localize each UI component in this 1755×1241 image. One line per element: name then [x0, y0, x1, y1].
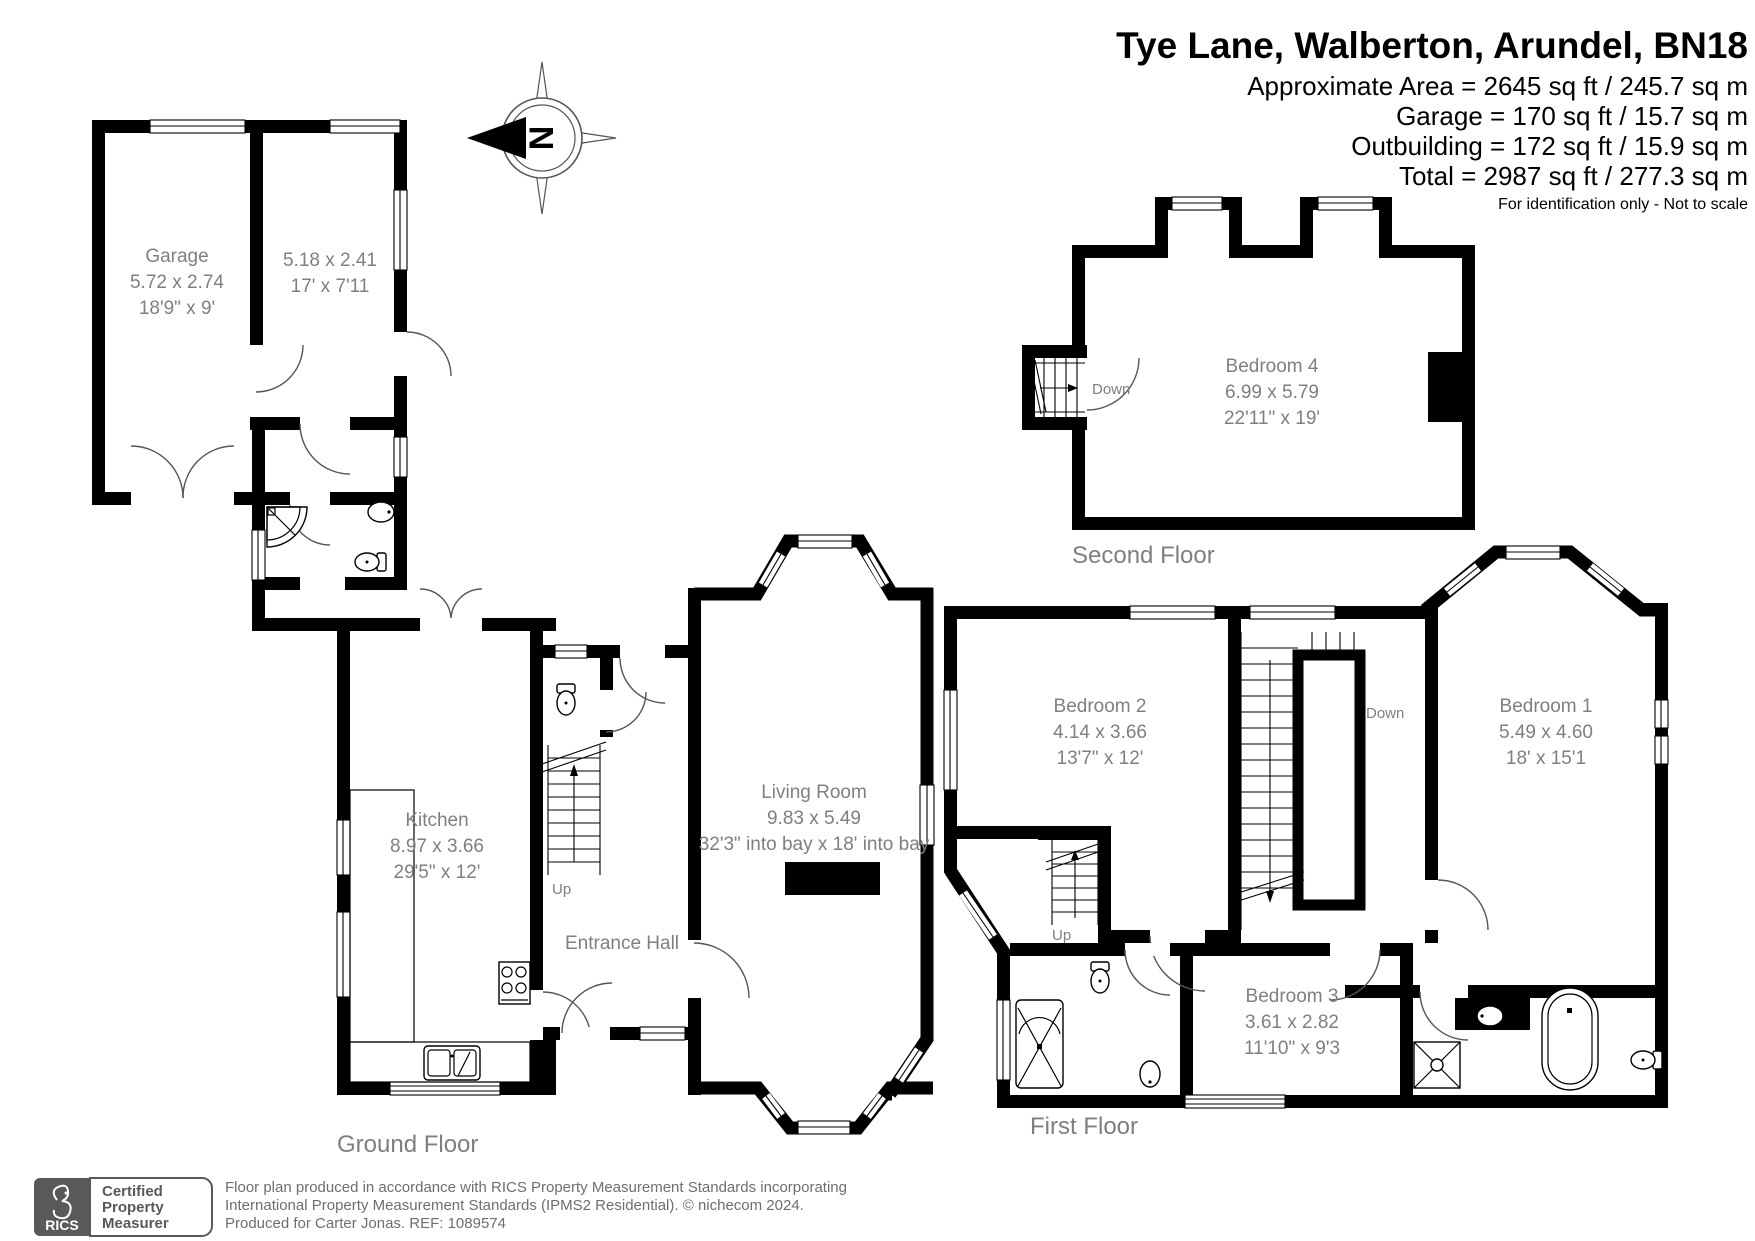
- garage-name: Garage: [145, 246, 208, 267]
- page-title: Tye Lane, Walberton, Arundel, BN18: [1116, 25, 1748, 66]
- outbuilding-metric: 5.18 x 2.41: [283, 250, 377, 271]
- bedroom2-imperial: 13'7" x 12': [1057, 748, 1144, 769]
- bedroom3-imperial: 11'10" x 9'3: [1244, 1038, 1340, 1059]
- outbuilding-area-line: Outbuilding = 172 sq ft / 15.9 sq m: [1351, 131, 1748, 161]
- bathroom2-toilet: [1631, 1051, 1662, 1069]
- second-floor-plan: Down Bedroom 4 6.99 x 5.79 22'11" x 19' …: [1022, 197, 1475, 569]
- corner-shower: [267, 507, 307, 547]
- ground-stairs: [542, 742, 606, 875]
- ground-stairs-up-label: Up: [552, 881, 571, 898]
- bedroom1-imperial: 18' x 15'1: [1506, 748, 1586, 769]
- fireplace: [785, 862, 880, 895]
- first-floor-plan: Down Up: [944, 546, 1668, 1140]
- first-floor-label: First Floor: [1030, 1113, 1138, 1140]
- bedroom3-metric: 3.61 x 2.82: [1245, 1012, 1339, 1033]
- bathroom2-bath: [1542, 988, 1598, 1090]
- north-arrow: [467, 117, 526, 159]
- living-room-name: Living Room: [761, 782, 867, 803]
- ground-floor-plan: Garage 5.72 x 2.74 18'9" x 9' 5.18 x 2.4…: [92, 120, 934, 1158]
- wc-toilet: [557, 684, 575, 715]
- bathroom2-shower: [1414, 1042, 1460, 1088]
- certified-measurer-badge: Certified Property Measurer: [90, 1178, 212, 1236]
- total-area-line: Total = 2987 sq ft / 277.3 sq m: [1399, 161, 1748, 191]
- bedroom1-name: Bedroom 1: [1500, 696, 1593, 717]
- footer-line-2: International Property Measurement Stand…: [225, 1197, 804, 1214]
- garage-imperial: 18'9" x 9': [139, 298, 215, 319]
- badge-line-1: Certified: [102, 1183, 163, 1200]
- outbuilding-imperial: 17' x 7'11: [291, 276, 370, 297]
- floorplan-page: Tye Lane, Walberton, Arundel, BN18 Appro…: [0, 0, 1755, 1241]
- bathroom2-sink: [1477, 1006, 1503, 1026]
- living-room-imperial: 32'3" into bay x 18' into bay: [699, 834, 930, 855]
- disclaimer: For identification only - Not to scale: [1498, 196, 1748, 213]
- garage-area-line: Garage = 170 sq ft / 15.7 sq m: [1396, 101, 1748, 131]
- kitchen-counter: [350, 790, 530, 1082]
- second-floor-label: Second Floor: [1072, 542, 1215, 569]
- bedroom1-metric: 5.49 x 4.60: [1499, 722, 1593, 743]
- second-floor-down-label: Down: [1092, 381, 1130, 398]
- compass-north-letter: N: [523, 126, 561, 151]
- kitchen-name: Kitchen: [405, 810, 468, 831]
- approx-area-line: Approximate Area = 2645 sq ft / 245.7 sq…: [1247, 71, 1748, 101]
- bedroom3-name: Bedroom 3: [1246, 986, 1339, 1007]
- entrance-hall-name: Entrance Hall: [565, 933, 679, 954]
- badge-line-2: Property: [102, 1199, 164, 1216]
- chimney-breast: [1428, 352, 1468, 422]
- first-floor-down-label: Down: [1366, 705, 1404, 722]
- first-floor-stairs-up: [1046, 840, 1104, 925]
- rics-logo: RICS: [34, 1178, 90, 1236]
- first-floor-stairs-down: [1235, 632, 1360, 930]
- footer-line-1: Floor plan produced in accordance with R…: [225, 1179, 847, 1196]
- bedroom2-name: Bedroom 2: [1054, 696, 1147, 717]
- kitchen-hob: [499, 962, 530, 1004]
- kitchen-imperial: 29'5" x 12': [394, 862, 481, 883]
- shower-room-sink: [368, 502, 394, 522]
- badge-line-3: Measurer: [102, 1215, 169, 1232]
- bedroom4-imperial: 22'11" x 19': [1224, 408, 1320, 429]
- first-floor-up-label: Up: [1052, 927, 1071, 944]
- bedroom2-metric: 4.14 x 3.66: [1053, 722, 1147, 743]
- bedroom4-name: Bedroom 4: [1226, 356, 1319, 377]
- kitchen-sink: [424, 1046, 480, 1080]
- bedroom4-metric: 6.99 x 5.79: [1225, 382, 1319, 403]
- bathroom1-bath: [1016, 1000, 1063, 1088]
- rics-wordmark: RICS: [45, 1217, 78, 1233]
- garage-metric: 5.72 x 2.74: [130, 272, 224, 293]
- header: Tye Lane, Walberton, Arundel, BN18 Appro…: [1116, 25, 1748, 213]
- compass-icon: N: [467, 62, 616, 214]
- bathroom1-sink: [1140, 1061, 1160, 1087]
- kitchen-metric: 8.97 x 3.66: [390, 836, 484, 857]
- bathroom1-toilet: [1091, 962, 1109, 993]
- footer: RICS Certified Property Measurer Floor p…: [34, 1178, 847, 1236]
- second-floor-stairs: [1030, 358, 1085, 417]
- shower-room-toilet: [355, 553, 386, 571]
- ground-floor-label: Ground Floor: [337, 1131, 478, 1158]
- living-room-metric: 9.83 x 5.49: [767, 808, 861, 829]
- floorplan-canvas: Tye Lane, Walberton, Arundel, BN18 Appro…: [0, 0, 1755, 1241]
- footer-line-3: Produced for Carter Jonas. REF: 1089574: [225, 1215, 506, 1232]
